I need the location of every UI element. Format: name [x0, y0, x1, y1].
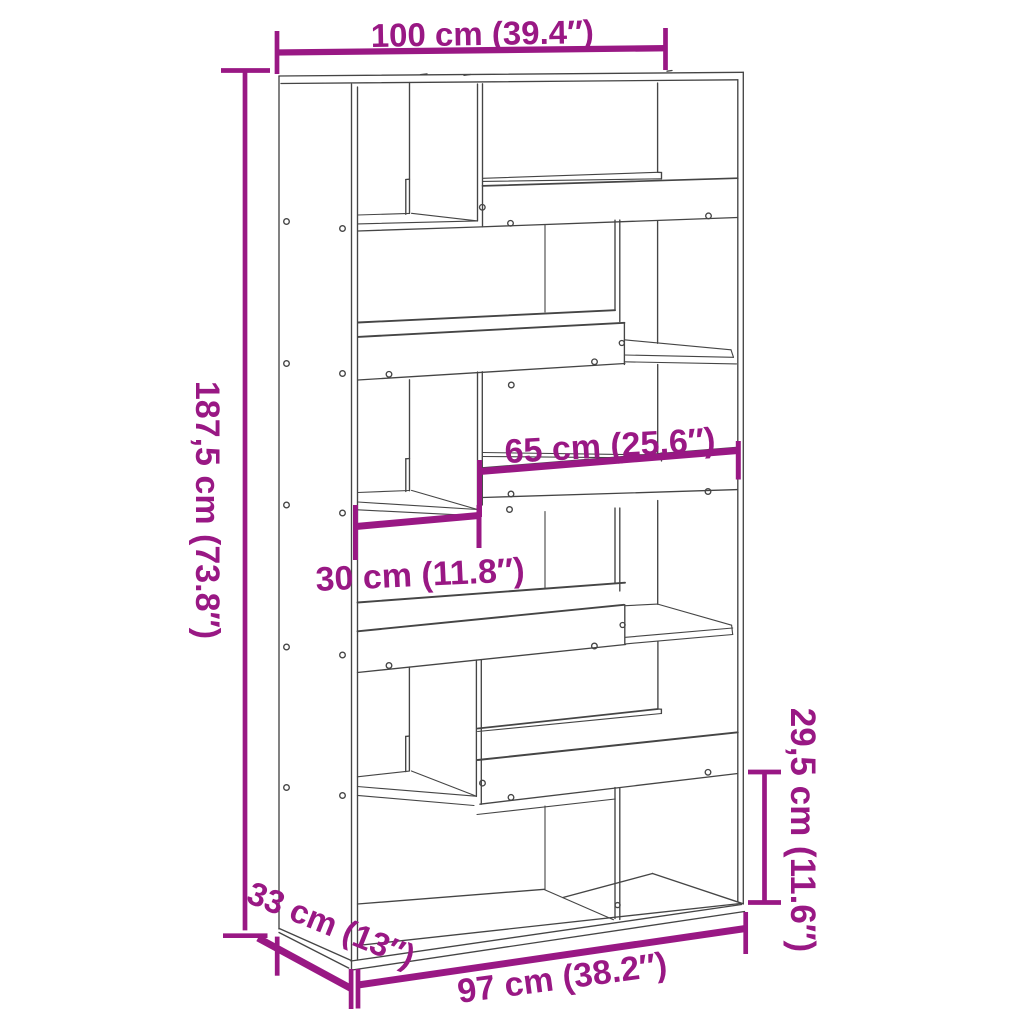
svg-text:100 cm (39.4″): 100 cm (39.4″) — [370, 13, 594, 54]
svg-text:29,5 cm (11.6″): 29,5 cm (11.6″) — [783, 708, 822, 952]
svg-text:65 cm (25.6″): 65 cm (25.6″) — [504, 421, 717, 471]
svg-text:187,5 cm (73.8″): 187,5 cm (73.8″) — [188, 381, 226, 639]
